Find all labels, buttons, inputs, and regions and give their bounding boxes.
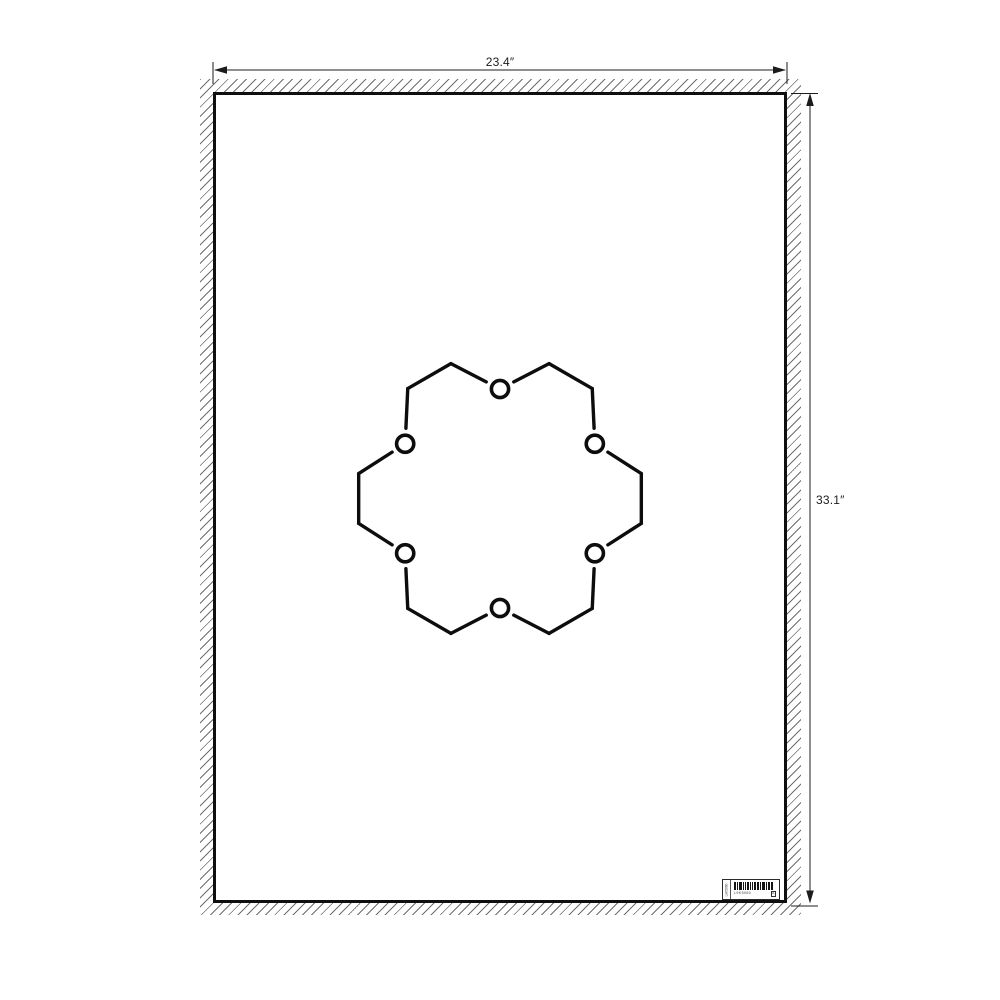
covalent-bond xyxy=(592,389,594,429)
covalent-bond xyxy=(408,364,451,389)
covalent-bond xyxy=(359,523,392,544)
barcode-bar xyxy=(745,882,746,890)
width-dimension-label: 23.4″ xyxy=(486,55,515,69)
oxygen-atom xyxy=(586,545,603,562)
barcode-side-strip: L9K5060 xyxy=(723,880,731,899)
oxygen-atom xyxy=(397,545,414,562)
barcode-bar xyxy=(766,882,767,890)
barcode-bar xyxy=(771,882,773,890)
height-arrow-top xyxy=(806,93,814,106)
barcode-bar xyxy=(747,882,749,890)
barcode-main: L9K5060 A xyxy=(731,880,779,899)
barcode-bar xyxy=(768,882,770,890)
covalent-bond xyxy=(549,364,592,389)
barcode-bar xyxy=(739,882,742,890)
covalent-bond xyxy=(406,569,408,609)
barcode-bar xyxy=(734,882,736,890)
oxygen-atom xyxy=(491,380,508,397)
covalent-bond xyxy=(549,608,592,633)
oxygen-atom xyxy=(586,435,603,452)
covalent-bond xyxy=(608,523,641,544)
molecule-structure-18-crown-6 xyxy=(216,95,784,900)
barcode-bar xyxy=(752,882,753,890)
height-dimension-label: 33.1″ xyxy=(816,493,845,507)
barcode-bars xyxy=(734,882,777,890)
barcode-bar xyxy=(737,882,738,890)
covalent-bond xyxy=(451,364,486,382)
barcode-bar xyxy=(754,882,756,890)
barcode-side-text: L9K5060 xyxy=(725,883,728,896)
barcode-check-letter: A xyxy=(771,891,777,897)
barcode-bar xyxy=(743,882,744,890)
covalent-bond xyxy=(592,569,594,609)
oxygen-atom xyxy=(491,599,508,616)
width-arrow-right xyxy=(773,66,786,74)
covalent-bond xyxy=(406,389,408,429)
barcode-label: L9K5060 L9K5060 A xyxy=(722,879,780,900)
poster-canvas: L9K5060 L9K5060 A xyxy=(213,92,787,903)
poster-mockup: L9K5060 L9K5060 A 23.4″ 33.1″ xyxy=(0,0,1000,1000)
covalent-bond xyxy=(451,615,486,633)
barcode-bar xyxy=(750,882,751,890)
covalent-bond xyxy=(608,452,641,473)
covalent-bond xyxy=(359,452,392,473)
height-arrow-bottom xyxy=(806,891,814,904)
barcode-bar xyxy=(762,882,765,890)
covalent-bond xyxy=(408,608,451,633)
covalent-bond xyxy=(514,364,549,382)
width-arrow-left xyxy=(214,66,227,74)
oxygen-atom xyxy=(397,435,414,452)
covalent-bond xyxy=(514,615,549,633)
barcode-bar xyxy=(760,882,761,890)
barcode-bar xyxy=(757,882,759,890)
